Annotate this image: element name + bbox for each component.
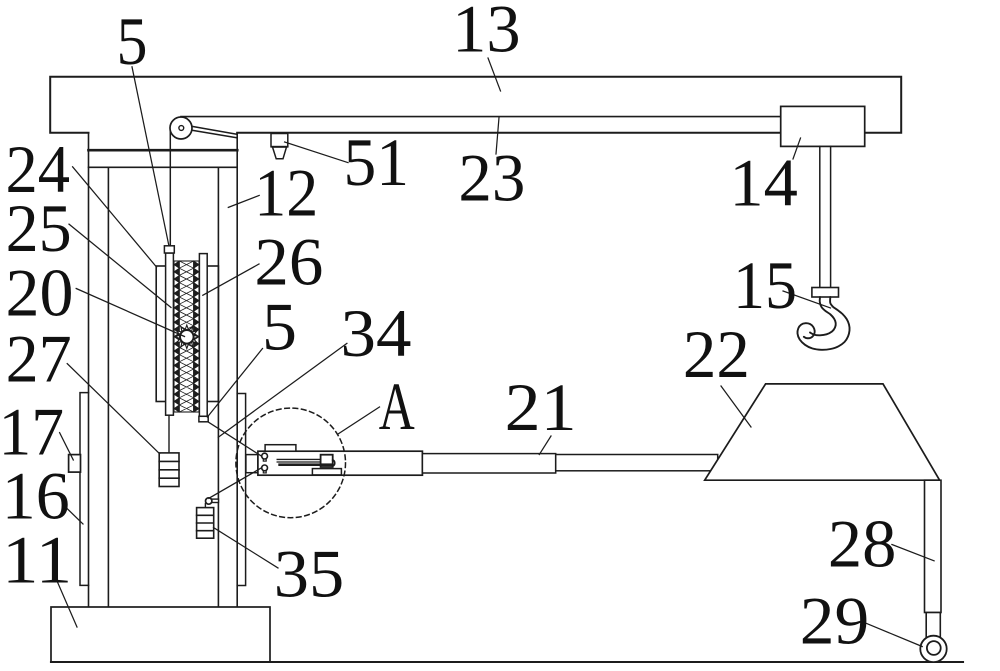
- svg-text:15: 15: [733, 247, 797, 323]
- svg-text:29: 29: [800, 583, 870, 659]
- svg-text:5: 5: [262, 289, 297, 365]
- svg-text:11: 11: [2, 522, 72, 598]
- svg-text:35: 35: [274, 536, 345, 612]
- svg-text:20: 20: [6, 255, 74, 331]
- svg-text:22: 22: [683, 316, 750, 392]
- svg-text:51: 51: [344, 124, 410, 200]
- svg-text:34: 34: [341, 295, 412, 371]
- svg-text:5: 5: [117, 3, 148, 79]
- svg-text:21: 21: [505, 369, 577, 445]
- svg-text:27: 27: [6, 321, 72, 397]
- svg-text:14: 14: [729, 145, 798, 221]
- svg-text:28: 28: [828, 506, 897, 582]
- svg-text:13: 13: [452, 0, 521, 67]
- svg-text:A: A: [379, 368, 415, 444]
- svg-text:12: 12: [254, 155, 318, 231]
- svg-text:23: 23: [458, 140, 525, 216]
